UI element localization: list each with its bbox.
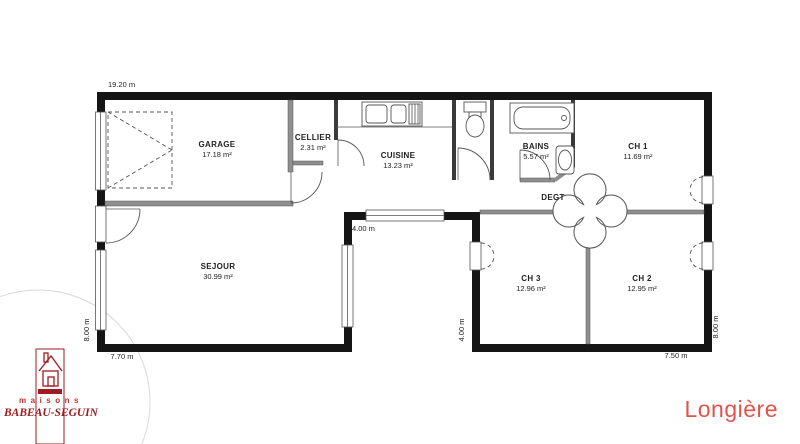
- room-area-ch3: 12.96 m²: [516, 284, 546, 293]
- room-label-degt: DEGT: [541, 193, 564, 202]
- sejour-east-window: [342, 245, 353, 327]
- room-area-garage: 17.18 m²: [202, 150, 232, 159]
- floorplan-drawing: GARAGE 17.18 m² CELLIER 2.31 m² CUISINE …: [0, 0, 800, 444]
- brand-word: maisons: [19, 396, 83, 405]
- toilet-icon: [464, 102, 486, 137]
- kitchen-sink: [336, 102, 452, 127]
- model-title: Longière: [684, 396, 778, 423]
- room-area-sejour: 30.99 m²: [203, 272, 233, 281]
- garage-door-opening: [96, 112, 107, 190]
- sejour-west-window: [96, 250, 107, 330]
- room-area-ch1: 11.69 m²: [623, 152, 653, 161]
- dim-right: 8.00 m: [711, 316, 720, 339]
- logo-circle: [0, 290, 150, 444]
- dim-bottom-left: 7.70 m: [111, 352, 134, 361]
- ch1-east-window: [690, 176, 713, 204]
- room-area-bains: 5.57 m²: [523, 152, 549, 161]
- dim-top: 19.20 m: [108, 80, 135, 89]
- dim-bottom-right: 7.50 m: [665, 351, 688, 360]
- ch2-east-window: [690, 242, 713, 270]
- room-label-cuisine: CUISINE: [381, 151, 416, 160]
- room-label-bains: BAINS: [523, 142, 550, 151]
- entry-door: [96, 206, 141, 243]
- logo-banner: [38, 389, 62, 394]
- room-area-ch2: 12.95 m²: [627, 284, 657, 293]
- dim-notch-top: 4.00 m: [352, 224, 375, 233]
- brand-name: BABEAU-SEGUIN: [3, 407, 99, 419]
- dim-notch-right: 4.00 m: [457, 319, 466, 342]
- room-label-garage: GARAGE: [199, 140, 236, 149]
- dim-left: 8.00 m: [82, 319, 91, 342]
- wc-door: [458, 148, 490, 180]
- hall-door-pinwheel: [553, 174, 627, 248]
- ch3-west-window: [470, 242, 494, 270]
- garage-door-symbol: [108, 112, 172, 188]
- brand-logo: maisons BABEAU-SEGUIN: [3, 349, 99, 444]
- room-label-ch1: CH 1: [628, 142, 648, 151]
- room-area-cuisine: 13.23 m²: [383, 161, 413, 170]
- cellier-door: [338, 140, 364, 166]
- room-area-cellier: 2.31 m²: [300, 143, 326, 152]
- floorplan-page: GARAGE 17.18 m² CELLIER 2.31 m² CUISINE …: [0, 0, 800, 444]
- room-label-sejour: SEJOUR: [201, 262, 236, 271]
- notch-top-window: [366, 210, 444, 221]
- bathtub-icon: [510, 103, 574, 133]
- room-label-cellier: CELLIER: [295, 133, 331, 142]
- washbasin-icon: [556, 146, 574, 174]
- room-label-ch3: CH 3: [521, 274, 541, 283]
- garage-to-kitchen-door: [291, 172, 322, 203]
- room-label-ch2: CH 2: [632, 274, 652, 283]
